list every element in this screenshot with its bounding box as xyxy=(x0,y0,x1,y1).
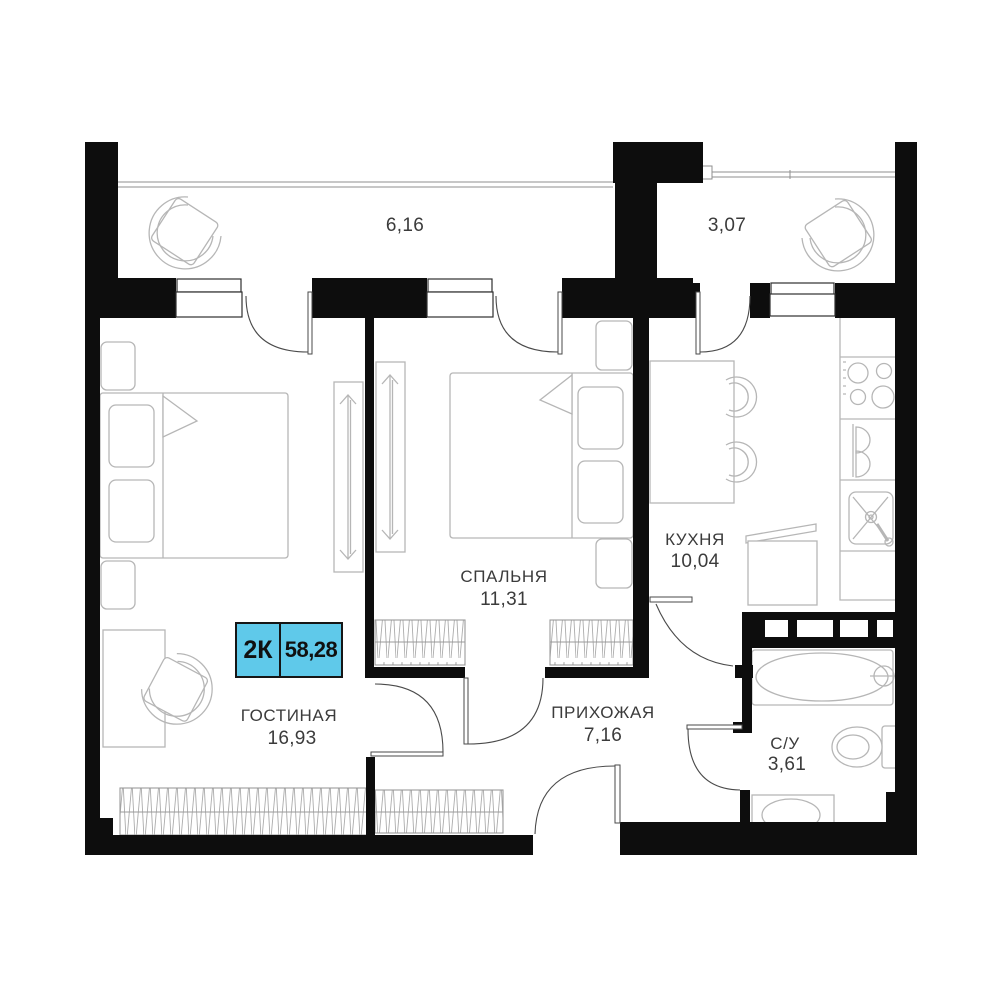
fridge-icon xyxy=(746,524,817,605)
balcony-right-chair-icon xyxy=(802,199,874,271)
entrance-door-arc xyxy=(535,766,615,834)
bathtub-icon xyxy=(752,650,897,705)
kitchen-balcony-door-leaf xyxy=(696,292,700,354)
bedroom-balcony-door-arc xyxy=(496,296,558,352)
living-balcony-window-icon xyxy=(176,279,242,317)
room-label-bedroom: СПАЛЬНЯ xyxy=(460,567,547,587)
apartment-badge: 2К 58,28 xyxy=(235,622,343,678)
room-label-living: ГОСТИНАЯ xyxy=(241,706,337,726)
bedroom-door-leaf xyxy=(464,678,468,744)
entrance-door-leaf xyxy=(615,765,620,823)
living-bed-icon xyxy=(100,342,288,609)
bedroom-bed-icon xyxy=(450,321,633,588)
floor-plan: 6,16 3,07 СПАЛЬНЯ 11,31 КУХНЯ 10,04 ГОСТ… xyxy=(0,0,1000,1000)
bedroom-door-arc xyxy=(468,678,543,744)
kitchen-door-arc xyxy=(656,604,733,666)
living-balcony-door-arc xyxy=(246,296,308,352)
living-door-arc xyxy=(375,684,443,752)
balcony-left-chair-icon xyxy=(149,197,221,269)
kitchen-balcony-window-icon xyxy=(770,283,835,316)
room-area-living: 16,93 xyxy=(267,728,316,750)
living-wardrobe-icon xyxy=(334,382,363,572)
living-door-leaf xyxy=(371,752,443,756)
room-label-hallway: ПРИХОЖАЯ xyxy=(551,703,655,723)
kitchen-door-leaf xyxy=(650,597,692,602)
kitchen-table-icon xyxy=(650,361,734,503)
stove-icon xyxy=(843,362,894,408)
room-area-bedroom: 11,31 xyxy=(480,589,528,611)
balcony-left-area-label: 6,16 xyxy=(386,215,424,237)
balcony-railings xyxy=(118,166,895,187)
apartment-total-area-label: 58,28 xyxy=(281,624,341,676)
bedroom-balcony-door-leaf xyxy=(558,292,562,354)
bathroom-door-leaf xyxy=(687,725,742,729)
bedroom-balcony-window-icon xyxy=(427,279,493,317)
balcony-right-area-label: 3,07 xyxy=(708,215,746,237)
kitchen-sink-icon xyxy=(849,492,893,546)
bedroom-wardrobe-icon xyxy=(376,362,405,552)
kitchen-balcony-door-arc xyxy=(700,296,750,352)
room-label-kitchen: КУХНЯ xyxy=(665,530,725,550)
floor-plan-drawing xyxy=(0,0,1000,1000)
cutting-board-icon xyxy=(853,424,870,477)
windows xyxy=(176,279,835,317)
wardrobes-hatched xyxy=(120,620,633,835)
room-area-bathroom: 3,61 xyxy=(768,754,806,776)
room-label-bathroom: С/У xyxy=(770,734,800,754)
room-area-hallway: 7,16 xyxy=(584,725,622,747)
room-area-kitchen: 10,04 xyxy=(670,551,719,573)
apartment-type-label: 2К xyxy=(237,624,281,676)
bathroom-door-arc xyxy=(688,729,740,790)
toilet-icon xyxy=(832,726,898,768)
living-balcony-door-leaf xyxy=(308,292,312,354)
